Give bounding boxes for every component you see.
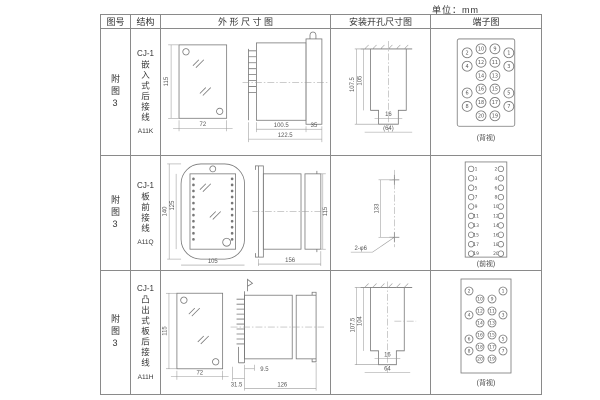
header-figure-no: 图号	[101, 15, 131, 29]
series-row1: CJ-1	[137, 49, 154, 58]
dim-install-v2-row1: 105	[358, 75, 364, 86]
dim-side-height-row2: 115	[323, 206, 329, 216]
model-row1: A11K	[138, 128, 153, 135]
svg-text:3: 3	[502, 313, 505, 319]
install-cell-row1: 107.5 105 16 (64)	[331, 29, 431, 156]
side-view-row1: 100.5 35 122.5	[243, 32, 328, 142]
svg-text:3: 3	[507, 64, 510, 70]
dim-side-2-row1: 35	[311, 123, 318, 129]
dim-install-b1-row1: 16	[385, 112, 392, 118]
install-drawing-row3: 107.5 104 16 64	[331, 271, 430, 394]
dim-install-b1-row3: 16	[384, 353, 391, 359]
dim-side-2-row3: 31.5	[231, 383, 243, 389]
spec-table: 图号 结构 外 形 尺 寸 图 安装开孔尺寸图 端子图 附图3 CJ-1 嵌入式…	[100, 14, 542, 395]
terminal-caption-row3: (背视)	[477, 378, 496, 387]
side-view-row3: 9.5 31.5 126	[231, 279, 324, 390]
svg-text:2: 2	[466, 50, 469, 56]
dim-front-outer-row2: 140	[163, 206, 169, 217]
front-view-row3: 115 72	[162, 293, 228, 379]
install-drawing-row2: 133 2-φ6	[331, 156, 430, 270]
svg-text:17: 17	[492, 100, 498, 106]
outline-drawing-row3: 115 72 9.5 31.5	[161, 271, 330, 394]
svg-text:7: 7	[475, 195, 478, 201]
structure-row1: 嵌入式后接线	[140, 60, 152, 123]
svg-text:6: 6	[494, 185, 497, 191]
terminal-cell-row1: 2109141211314136161558181772019 (背视)	[431, 29, 541, 156]
figure-no-row2: 附图3	[109, 195, 122, 232]
dim-side-3-row3: 126	[277, 383, 288, 389]
svg-text:9: 9	[491, 297, 494, 303]
terminal-grid-row2: 1234567891011121314151617181920	[468, 166, 503, 257]
dim-install-b2-row3: 64	[384, 367, 391, 373]
svg-text:5: 5	[502, 337, 505, 343]
outline-cell-row2: 140 125 105 115 156	[161, 156, 331, 271]
svg-text:19: 19	[473, 251, 479, 257]
figure-no-row1: 附图3	[109, 74, 122, 111]
structure-cell-row1: CJ-1 嵌入式后接线 A11K	[131, 29, 161, 156]
series-row2: CJ-1	[137, 181, 154, 190]
figure-cell-row2: 附图3	[101, 156, 131, 271]
svg-text:11: 11	[492, 60, 498, 66]
svg-text:18: 18	[478, 100, 484, 106]
svg-text:6: 6	[468, 337, 471, 343]
svg-text:13: 13	[489, 321, 495, 327]
svg-text:10: 10	[478, 47, 484, 53]
svg-text:1: 1	[475, 166, 478, 172]
svg-text:17: 17	[489, 345, 495, 351]
dim-front-width-row1: 72	[200, 122, 207, 128]
svg-text:3: 3	[475, 176, 478, 182]
structure-cell-row2: CJ-1 板前接线 A11Q	[131, 156, 161, 271]
outline-drawing-row2: 140 125 105 115 156	[161, 156, 330, 270]
structure-row2: 板前接线	[140, 192, 152, 234]
dim-front-width-row2: 105	[208, 259, 219, 265]
svg-text:9: 9	[493, 47, 496, 53]
dim-side-length-row2: 156	[285, 258, 296, 264]
dim-install-v1-row2: 133	[375, 203, 381, 214]
svg-text:8: 8	[468, 349, 471, 355]
hole-label-row2: 2-φ6	[354, 246, 367, 252]
series-row3: CJ-1	[137, 284, 154, 293]
terminal-drawing-row1: 2109141211314136161558181772019 (背视)	[431, 29, 541, 155]
terminal-caption-row2: (前视)	[477, 259, 495, 268]
terminal-drawing-row2: 1234567891011121314151617181920 (前视)	[431, 156, 541, 270]
svg-text:13: 13	[492, 73, 498, 79]
dim-install-v1-row3: 107.5	[350, 317, 356, 333]
svg-text:1: 1	[502, 289, 505, 295]
svg-text:11: 11	[489, 309, 495, 315]
svg-text:4: 4	[466, 64, 469, 70]
svg-text:12: 12	[478, 60, 484, 66]
svg-text:6: 6	[466, 91, 469, 97]
svg-text:20: 20	[478, 113, 484, 119]
install-cell-row2: 133 2-φ6	[331, 156, 431, 271]
header-terminal-diagram: 端子图	[431, 15, 541, 29]
install-cell-row3: 107.5 104 16 64	[331, 271, 431, 394]
page: { "unit_label": "单位：mm", "table": { "hea…	[0, 0, 600, 400]
svg-text:20: 20	[477, 357, 483, 363]
front-view-row1: 115 72	[164, 45, 232, 131]
dim-front-height-row1: 115	[164, 76, 170, 86]
structure-cell-row3: CJ-1 凸出式板后接线 A11H	[131, 271, 161, 394]
svg-text:2: 2	[494, 166, 497, 172]
dim-front-inner-row2: 125	[170, 200, 176, 211]
svg-text:12: 12	[477, 309, 483, 315]
svg-text:9: 9	[475, 204, 478, 210]
svg-text:15: 15	[489, 333, 495, 339]
svg-text:16: 16	[477, 333, 483, 339]
svg-text:18: 18	[477, 345, 483, 351]
svg-text:17: 17	[473, 242, 479, 248]
svg-text:4: 4	[468, 313, 471, 319]
svg-text:14: 14	[477, 321, 483, 327]
model-row2: A11Q	[137, 239, 153, 246]
terminal-caption-row1: (背视)	[477, 133, 496, 142]
svg-text:4: 4	[494, 176, 497, 182]
svg-text:5: 5	[507, 91, 510, 97]
dim-front-height-row3: 115	[162, 326, 168, 336]
svg-text:2: 2	[468, 289, 471, 295]
svg-text:15: 15	[473, 232, 479, 238]
svg-text:15: 15	[492, 87, 498, 93]
outline-cell-row1: 115 72 100.5 35 122.5	[161, 29, 331, 156]
svg-text:5: 5	[475, 185, 478, 191]
svg-text:8: 8	[494, 195, 497, 201]
svg-text:8: 8	[466, 104, 469, 110]
outline-cell-row3: 115 72 9.5 31.5	[161, 271, 331, 394]
terminal-grid-row3: 2110941211314136161558181772019	[465, 287, 507, 363]
structure-row3: 凸出式板后接线	[140, 295, 152, 369]
dim-install-v2-row3: 104	[358, 315, 364, 326]
terminal-grid-row1: 2109141211314136161558181772019	[462, 44, 514, 121]
outline-drawing-row1: 115 72 100.5 35 122.5	[161, 29, 330, 155]
svg-text:16: 16	[478, 87, 484, 93]
model-row3: A11H	[138, 374, 154, 381]
dim-install-b2-row1: (64)	[383, 126, 394, 132]
terminal-drawing-row3: 2110941211314136161558181772019 (背视)	[431, 271, 541, 394]
terminal-cell-row3: 2110941211314136161558181772019 (背视)	[431, 271, 541, 394]
figure-no-row3: 附图3	[109, 314, 122, 351]
install-drawing-row1: 107.5 105 16 (64)	[331, 29, 430, 155]
header-install-dims: 安装开孔尺寸图	[331, 15, 431, 29]
svg-text:14: 14	[478, 73, 484, 79]
dim-front-width-row3: 72	[196, 371, 203, 377]
svg-text:10: 10	[477, 297, 483, 303]
header-outline-dims: 外 形 尺 寸 图	[161, 15, 331, 29]
svg-text:19: 19	[489, 357, 495, 363]
svg-text:7: 7	[507, 104, 510, 110]
figure-cell-row1: 附图3	[101, 29, 131, 156]
dim-install-v1-row1: 107.5	[350, 76, 356, 92]
dim-side-3-row1: 122.5	[278, 133, 294, 139]
side-view-row2: 115 156	[252, 166, 328, 266]
svg-text:13: 13	[473, 223, 479, 229]
svg-text:11: 11	[473, 214, 479, 220]
svg-text:7: 7	[502, 349, 505, 355]
dim-side-1-row1: 100.5	[274, 123, 290, 129]
front-view-row2: 140 125 105	[163, 164, 245, 265]
dim-side-1-row3: 9.5	[260, 367, 269, 373]
svg-text:1: 1	[507, 50, 510, 56]
svg-text:19: 19	[492, 113, 498, 119]
figure-cell-row3: 附图3	[101, 271, 131, 394]
terminal-cell-row2: 1234567891011121314151617181920 (前视)	[431, 156, 541, 271]
header-structure: 结构	[131, 15, 161, 29]
